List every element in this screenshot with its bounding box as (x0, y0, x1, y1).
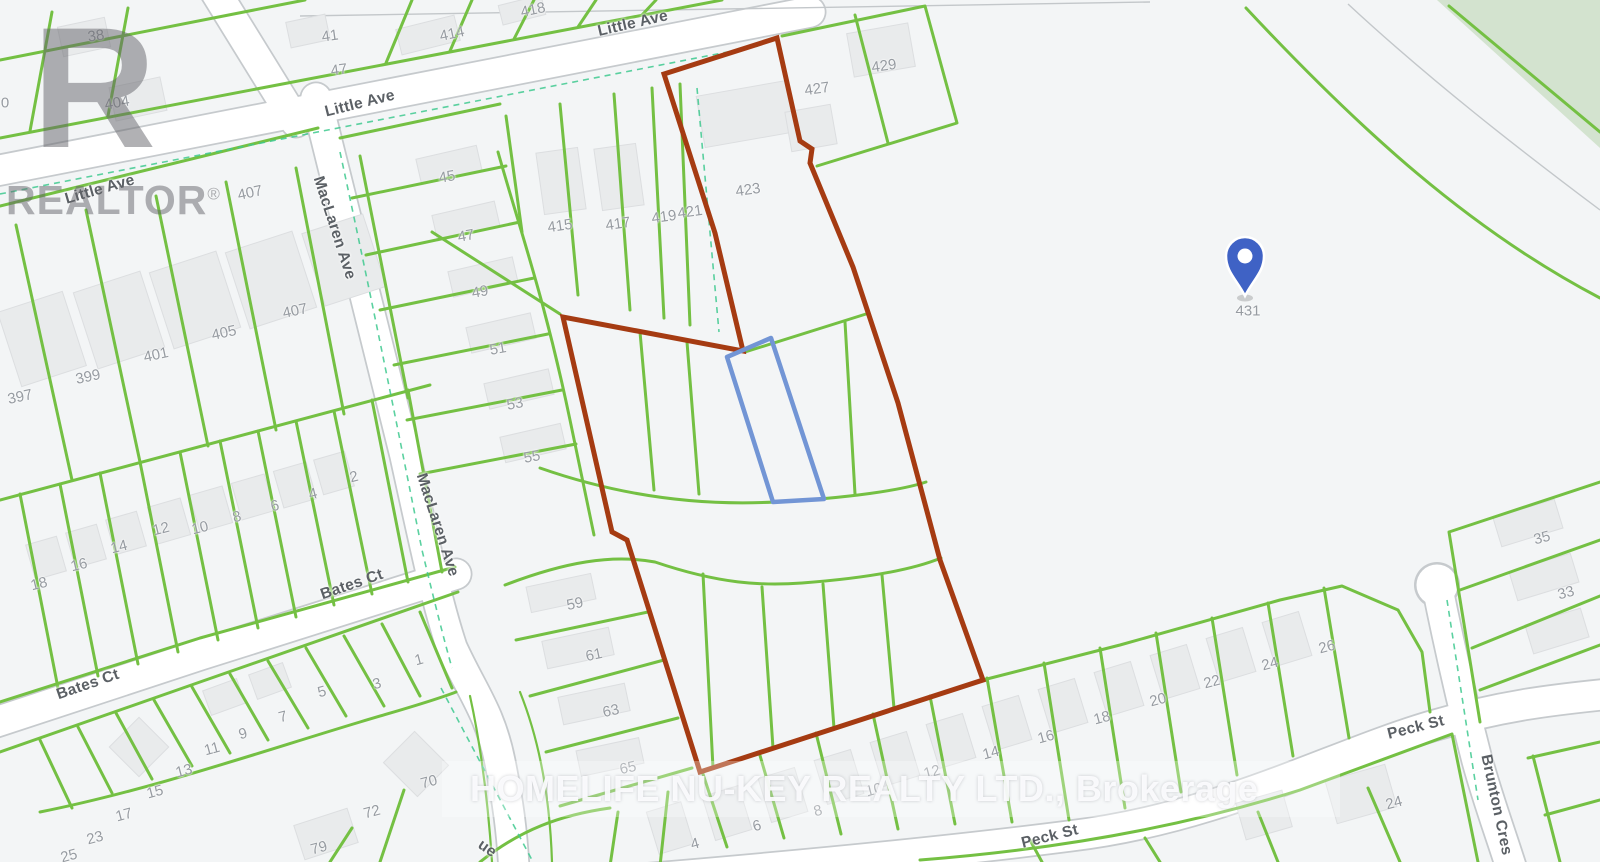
brokerage-watermark: HOMELIFE NU-KEY REALTY LTD., Brokerage (442, 761, 1340, 817)
realtor-r-icon: R (6, 2, 221, 174)
parcel-map (0, 0, 1600, 862)
map-canvas[interactable]: Little AveLittle AveLittle AveMacLaren A… (0, 0, 1600, 862)
realtor-logo-watermark: R REALTOR® (6, 2, 221, 221)
realtor-wordmark: REALTOR® (6, 180, 221, 221)
